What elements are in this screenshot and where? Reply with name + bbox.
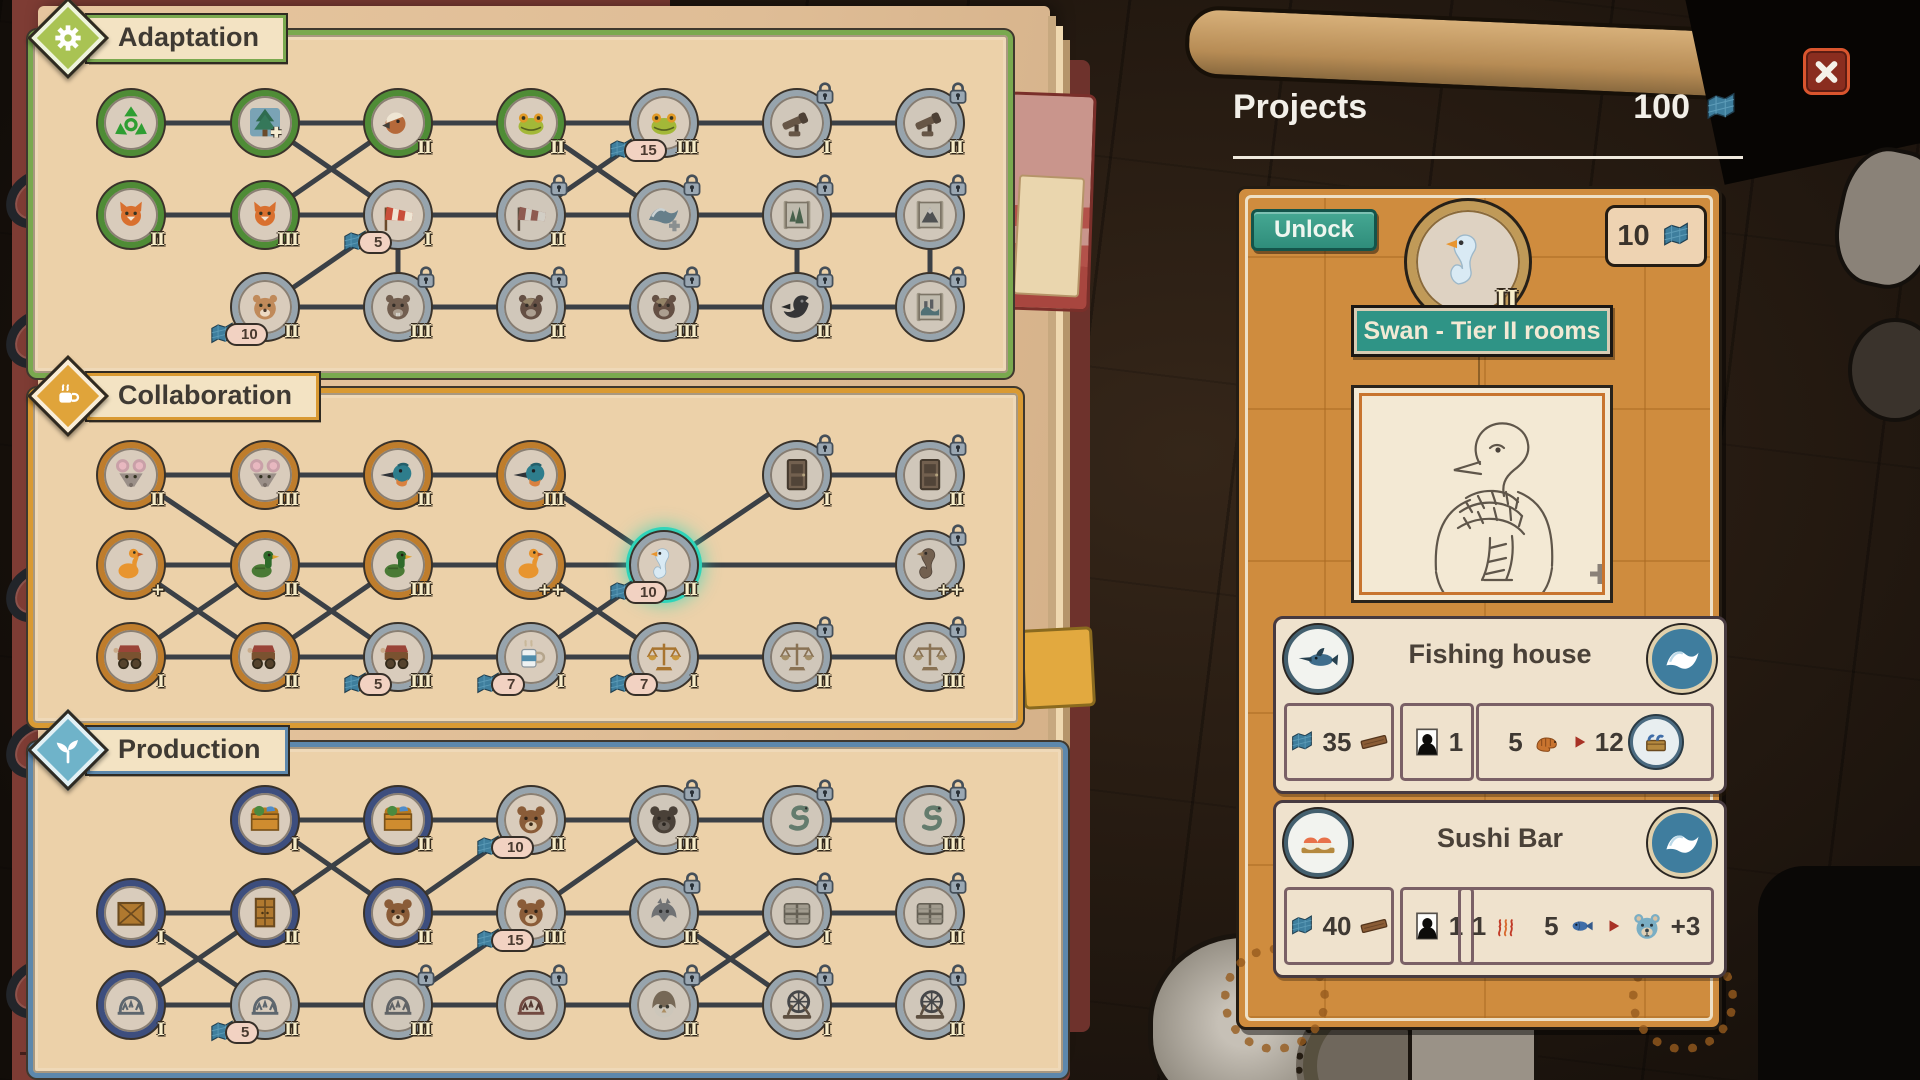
unlock-button[interactable]: Unlock — [1251, 209, 1377, 251]
door-icon — [910, 455, 950, 495]
lock-icon — [811, 961, 839, 989]
cost-badge: 7 — [605, 671, 658, 698]
tier-label: ++ — [937, 580, 964, 600]
crate-icon — [111, 893, 151, 933]
tech-node-chest-II[interactable]: II — [365, 787, 431, 853]
tier-label: II — [417, 835, 431, 855]
fish-basket-icon — [1630, 716, 1682, 768]
lock-icon — [811, 776, 839, 804]
sprout-icon — [27, 709, 109, 791]
tier-label: II — [949, 138, 963, 158]
tier-label: II — [284, 672, 298, 692]
tier-label: III — [277, 490, 298, 510]
tier-label: II — [949, 490, 963, 510]
mallard-icon — [378, 545, 418, 585]
tech-node-snake-III[interactable]: III — [897, 787, 963, 853]
section-header-adaptation: Adaptation — [39, 9, 286, 67]
building-sushi-bar: Sushi Bar 40 1 15+3 — [1273, 800, 1727, 978]
tier-label: II — [683, 1020, 697, 1040]
tech-node-coffee-mug-I[interactable]: I7 — [498, 624, 564, 690]
tier-label: II — [284, 928, 298, 948]
tier-label: III — [410, 1020, 431, 1040]
lock-icon — [944, 961, 972, 989]
tech-node-windsock-II[interactable]: II — [498, 182, 564, 248]
tech-node-door-II[interactable]: II — [897, 442, 963, 508]
game-screen: AdaptationIIIIIII15IIIIIIIII5IIII10IIIII… — [0, 0, 1920, 1080]
tier-label: III — [942, 672, 963, 692]
tech-node-parcel-II[interactable]: II — [897, 880, 963, 946]
tech-node-bat-II[interactable]: II — [631, 880, 697, 946]
bear-dark-icon — [644, 800, 684, 840]
tech-node-scroll-forest[interactable] — [764, 182, 830, 248]
tech-node-scales-I[interactable]: I7 — [631, 624, 697, 690]
project-banner: Swan - Tier II rooms — [1351, 305, 1613, 357]
production-formula: 512 — [1476, 703, 1714, 781]
tech-node-telescope-I[interactable]: I — [764, 90, 830, 156]
lock-icon — [412, 961, 440, 989]
tier-label: I — [823, 490, 830, 510]
beaver-icon — [378, 287, 418, 327]
raven-icon — [777, 287, 817, 327]
windsock-icon — [511, 195, 551, 235]
lock-icon — [678, 776, 706, 804]
scroll-forest-icon — [777, 195, 817, 235]
lock-icon — [811, 613, 839, 641]
trap-red-icon — [511, 985, 551, 1025]
lock-icon — [545, 171, 573, 199]
tier-label: II — [284, 1020, 298, 1040]
tech-node-scroll-mountain[interactable] — [897, 182, 963, 248]
section-adaptation: AdaptationIIIIIII15IIIIIIIII5IIII10IIIII… — [28, 30, 1013, 378]
lock-icon — [944, 79, 972, 107]
gear-icon — [27, 0, 109, 79]
cost-badge: 10 — [472, 834, 534, 861]
duck-orange-icon — [511, 545, 551, 585]
coffee-icon — [27, 355, 109, 437]
bear-icon — [378, 893, 418, 933]
cost-value: 40 — [1323, 911, 1352, 942]
tier-label: II — [550, 230, 564, 250]
cart-icon — [111, 637, 151, 677]
tier-label: I — [823, 1020, 830, 1040]
tier-label: II — [284, 322, 298, 342]
person-icon — [1411, 720, 1443, 764]
tech-node-fox-III[interactable]: III — [232, 182, 298, 248]
tech-node-bear-III[interactable]: III15 — [498, 880, 564, 946]
tech-node-windsock-I[interactable]: I5 — [365, 182, 431, 248]
tier-label: II — [150, 230, 164, 250]
tier-label: I — [557, 672, 564, 692]
section-header-collaboration: Collaboration — [39, 367, 319, 425]
cost-badge: 5 — [339, 671, 392, 698]
lock-icon — [944, 613, 972, 641]
lock-icon — [811, 79, 839, 107]
arrow-icon — [1571, 733, 1589, 751]
section-collaboration: CollaborationIIIIIIIIIIIII+IIIII++II10++… — [28, 388, 1023, 728]
tech-node-frog-III[interactable]: III15 — [631, 90, 697, 156]
tech-node-wombat-III[interactable]: III — [631, 274, 697, 340]
boulder — [1758, 866, 1920, 1080]
tech-node-wheel-II[interactable]: II — [897, 972, 963, 1038]
tech-node-scroll-water[interactable] — [897, 274, 963, 340]
cost-badge: 10 — [206, 321, 268, 348]
lock-icon — [678, 263, 706, 291]
close-button[interactable] — [1803, 48, 1850, 95]
tier-label: I — [157, 928, 164, 948]
tech-node-mallard-II[interactable]: II — [232, 532, 298, 598]
telescope-icon — [777, 103, 817, 143]
mouse-icon — [111, 455, 151, 495]
tech-node-chest-I[interactable]: I — [232, 787, 298, 853]
frog-icon — [511, 103, 551, 143]
blueprint-balance: 100 — [1633, 88, 1743, 127]
tier-label: III — [410, 580, 431, 600]
tech-node-bear-II[interactable]: II10 — [498, 787, 564, 853]
scales-icon — [777, 637, 817, 677]
tree-plus-icon — [245, 103, 285, 143]
building-name: Fishing house — [1354, 639, 1646, 670]
lock-icon — [944, 263, 972, 291]
plank-icon — [1357, 911, 1391, 941]
tech-node-trap-I[interactable]: I — [98, 972, 164, 1038]
wave-plus-icon — [644, 195, 684, 235]
tech-node-swan-brown-++[interactable]: ++ — [897, 532, 963, 598]
lock-icon — [944, 521, 972, 549]
project-card-swan-tier-2: Unlock 10 II Swan - Tier II rooms Fishin… — [1236, 186, 1722, 1030]
duck-orange-icon — [111, 545, 151, 585]
tier-label: I — [291, 835, 298, 855]
lock-icon — [944, 869, 972, 897]
wave-icon — [1648, 625, 1716, 693]
lock-icon — [944, 171, 972, 199]
scroll-mountain-icon — [910, 195, 950, 235]
cost-badge: 10 — [605, 579, 667, 606]
tech-node-wheel-I[interactable]: I — [764, 972, 830, 1038]
cost-badge: 15 — [605, 137, 667, 164]
tier-label: II — [550, 835, 564, 855]
lock-icon — [678, 961, 706, 989]
sushi-icon — [1284, 809, 1352, 877]
door-icon — [777, 455, 817, 495]
tier-label: II — [683, 928, 697, 948]
tech-node-parcel-I[interactable]: I — [764, 880, 830, 946]
mallard-icon — [245, 545, 285, 585]
section-header-production: Production — [39, 721, 288, 779]
tech-node-mouse-III[interactable]: III — [232, 442, 298, 508]
tech-node-cart-II[interactable]: II — [232, 624, 298, 690]
tier-label: I — [823, 138, 830, 158]
chest-icon — [378, 800, 418, 840]
lock-icon — [678, 869, 706, 897]
swan-icon — [1435, 229, 1501, 295]
lock-icon — [811, 431, 839, 459]
fox-icon — [245, 195, 285, 235]
snake-icon — [777, 800, 817, 840]
tier-label: + — [151, 580, 164, 600]
wheel-icon — [777, 985, 817, 1025]
divider — [1233, 156, 1743, 159]
lock-icon — [678, 171, 706, 199]
tier-label: II — [417, 138, 431, 158]
cost-badge: 5 — [339, 229, 392, 256]
blueprint-flag-icon — [1657, 221, 1695, 251]
projects-title: Projects — [1233, 88, 1367, 127]
blueprint-flag-icon — [1699, 91, 1743, 125]
building-name: Sushi Bar — [1354, 823, 1646, 854]
tech-node-trap-III[interactable]: III — [365, 972, 431, 1038]
tier-label: III — [676, 835, 697, 855]
tier-label: II — [816, 672, 830, 692]
tech-node-owl-hood-II[interactable]: II — [631, 972, 697, 1038]
tech-node-tree-plus[interactable] — [232, 90, 298, 156]
tech-node-beaver-III[interactable]: III — [365, 274, 431, 340]
plank-icon — [1357, 727, 1391, 757]
parcel-icon — [777, 893, 817, 933]
tech-node-bird-II[interactable]: II — [365, 90, 431, 156]
tech-node-door-I[interactable]: I — [764, 442, 830, 508]
tier-label: III — [410, 322, 431, 342]
tech-node-wombat-II[interactable]: II — [498, 274, 564, 340]
swordfish-icon — [1284, 625, 1352, 693]
tier-label: III — [543, 928, 564, 948]
section-title: Production — [87, 727, 288, 774]
cost-value: 35 — [1323, 727, 1352, 758]
tier-label: I — [823, 928, 830, 948]
grub-icon — [1529, 726, 1565, 758]
snake-icon — [910, 800, 950, 840]
swan-sketch-drawing — [1362, 396, 1602, 592]
tech-node-bear-II[interactable]: II — [365, 880, 431, 946]
tier-label: II — [683, 580, 697, 600]
lock-icon — [944, 776, 972, 804]
person-icon — [1411, 904, 1443, 948]
fish-icon — [1565, 911, 1599, 941]
trap-icon — [111, 985, 151, 1025]
tech-node-kingfisher-II[interactable]: II — [365, 442, 431, 508]
arrow-icon — [1605, 917, 1623, 935]
bat-icon — [644, 893, 684, 933]
cost-value: 10 — [1617, 220, 1649, 253]
wombat-icon — [511, 287, 551, 327]
wombat-icon — [644, 287, 684, 327]
wheel-icon — [910, 985, 950, 1025]
lock-icon — [811, 869, 839, 897]
io-value: 5 — [1508, 727, 1522, 758]
tech-node-trap-red[interactable] — [498, 972, 564, 1038]
tier-label: III — [277, 230, 298, 250]
tier-label: II — [417, 490, 431, 510]
bird-icon — [378, 103, 418, 143]
tech-node-cart-I[interactable]: I — [98, 624, 164, 690]
kingfisher-icon — [378, 455, 418, 495]
io-value: 1 — [1472, 911, 1486, 942]
telescope-icon — [910, 103, 950, 143]
worker-count: 1 — [1449, 727, 1463, 758]
lock-icon — [545, 263, 573, 291]
tech-node-snake-II[interactable]: II — [764, 787, 830, 853]
tech-node-cart-III[interactable]: III5 — [365, 624, 431, 690]
tier-label: II — [417, 928, 431, 948]
fox-icon — [111, 195, 151, 235]
tech-node-bear-dark-III[interactable]: III — [631, 787, 697, 853]
tech-node-raven-II[interactable]: II — [764, 274, 830, 340]
lock-icon — [545, 961, 573, 989]
owl-hood-icon — [644, 985, 684, 1025]
tech-node-trap-II[interactable]: II5 — [232, 972, 298, 1038]
section-title: Collaboration — [87, 373, 319, 420]
tech-node-crate-I[interactable]: I — [98, 880, 164, 946]
cost-badge: 5 — [206, 1019, 259, 1046]
building-fishing-house: Fishing house 35 1 512 — [1273, 616, 1727, 794]
orange-bookmark-tab[interactable] — [1020, 626, 1096, 710]
cost-badge: 15 — [472, 927, 534, 954]
tier-label: I — [690, 672, 697, 692]
tech-node-mallard-III[interactable]: III — [365, 532, 431, 598]
scroll-water-icon — [910, 287, 950, 327]
chest-icon — [245, 800, 285, 840]
tech-node-scales-II[interactable]: II — [764, 624, 830, 690]
tier-label: II — [816, 835, 830, 855]
lock-icon — [811, 263, 839, 291]
swan-brown-icon — [910, 545, 950, 585]
io-value: 5 — [1544, 911, 1558, 942]
blueprint-flag-icon — [1287, 914, 1317, 939]
scales-icon — [910, 637, 950, 677]
tier-label: I — [424, 230, 431, 250]
swan-portrait — [1351, 385, 1613, 603]
tier-label: I — [157, 1020, 164, 1040]
tier-label: II — [949, 928, 963, 948]
bear-face-icon — [1629, 908, 1665, 944]
heat-icon — [1492, 907, 1520, 945]
tier-label: III — [942, 835, 963, 855]
tech-node-duck-orange-++[interactable]: ++ — [498, 532, 564, 598]
tech-node-telescope-II[interactable]: II — [897, 90, 963, 156]
kingfisher-icon — [511, 455, 551, 495]
cost-badge: 7 — [472, 671, 525, 698]
balance-value: 100 — [1633, 88, 1690, 127]
tech-node-scales-III[interactable]: III — [897, 624, 963, 690]
tier-label: II — [150, 490, 164, 510]
lock-icon — [944, 431, 972, 459]
tech-node-recycle[interactable] — [98, 90, 164, 156]
worker-slots: 1 — [1400, 703, 1474, 781]
blueprint-flag-icon — [1287, 730, 1317, 755]
page-tab[interactable] — [1013, 174, 1085, 297]
build-cost: 40 — [1284, 887, 1394, 965]
tech-node-swan-II[interactable]: II10 — [631, 532, 697, 598]
tech-node-fox-II[interactable]: II — [98, 182, 164, 248]
tier-label: III — [676, 322, 697, 342]
close-icon — [1812, 57, 1841, 87]
tier-label: II — [550, 138, 564, 158]
lock-icon — [412, 263, 440, 291]
wardrobe-icon — [245, 893, 285, 933]
tier-label: III — [543, 490, 564, 510]
mouse-icon — [245, 455, 285, 495]
tech-node-frog-II[interactable]: II — [498, 90, 564, 156]
tier-label: II — [949, 1020, 963, 1040]
section-production: ProductionIIIII10IIIIIIIIIIIIIIII15IIIII… — [28, 742, 1068, 1078]
io-value: 12 — [1595, 727, 1624, 758]
tech-node-kingfisher-III[interactable]: III — [498, 442, 564, 508]
projects-header: Projects 100 — [1233, 88, 1743, 127]
tier-label: ++ — [538, 580, 565, 600]
tech-node-otter-II[interactable]: II10 — [232, 274, 298, 340]
tier-label: II — [550, 322, 564, 342]
tech-node-mouse-II[interactable]: II — [98, 442, 164, 508]
tier-label: II — [816, 322, 830, 342]
tier-label: II — [284, 580, 298, 600]
wave-icon — [1648, 809, 1716, 877]
tech-node-wardrobe-II[interactable]: II — [232, 880, 298, 946]
production-formula: 15+3 — [1458, 887, 1714, 965]
trap-icon — [378, 985, 418, 1025]
recycle-icon — [111, 103, 151, 143]
io-value: +3 — [1671, 911, 1701, 942]
project-cost: 10 — [1605, 205, 1707, 267]
section-title: Adaptation — [87, 15, 286, 62]
lock-icon — [811, 171, 839, 199]
tier-label: I — [157, 672, 164, 692]
tech-node-duck-orange-+[interactable]: + — [98, 532, 164, 598]
tier-label: III — [410, 672, 431, 692]
tech-node-wave-plus[interactable] — [631, 182, 697, 248]
cart-icon — [245, 637, 285, 677]
parcel-icon — [910, 893, 950, 933]
tier-label: III — [676, 138, 697, 158]
build-cost: 35 — [1284, 703, 1394, 781]
